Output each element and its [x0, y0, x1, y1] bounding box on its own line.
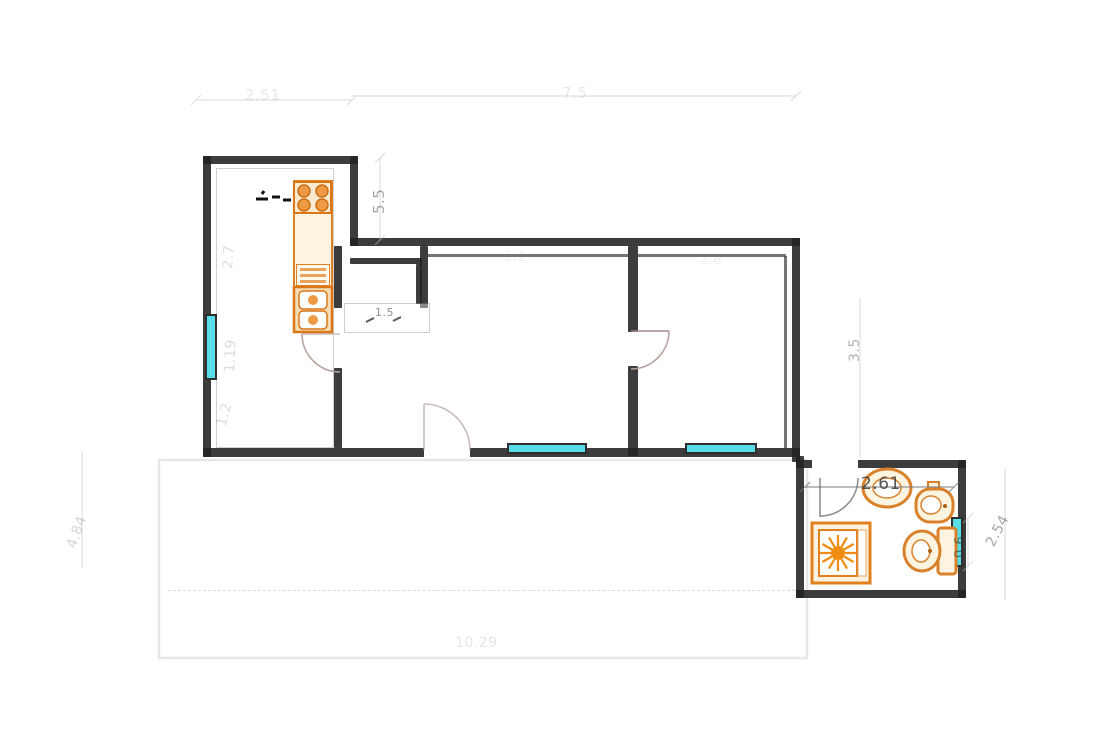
- dim-wing-right: 3.5: [847, 338, 863, 362]
- dim-kitchen-upper: 2.7: [220, 244, 238, 269]
- plan-vector-layer: [0, 0, 1109, 741]
- stove-icon: [294, 182, 331, 213]
- room-door-arc: [631, 331, 669, 369]
- dim-bath-width: 2.61: [861, 474, 901, 494]
- toilet-icon: [904, 528, 956, 574]
- kitchen-door-arc: [302, 334, 340, 372]
- dim-corridor-niche: 1.5: [375, 306, 394, 319]
- dim-bottom-total: 10.29: [455, 635, 498, 651]
- dish-rack-icon: [256, 191, 291, 200]
- floor-plan-canvas: 2.51 7.5 5.5 2.7 1.19 1.2 1.5 4.84 3.2 2…: [0, 0, 1109, 741]
- dim-kitchen-window: 1.19: [222, 339, 240, 373]
- bidet-icon: [916, 482, 953, 522]
- shower-icon: [812, 523, 870, 583]
- double-sink-icon: [294, 287, 332, 332]
- dim-top-kitchen: 2.51: [245, 86, 280, 104]
- dim-top-wing: 7.5: [562, 84, 587, 102]
- dim-kitchen-offset: 5.5: [370, 189, 388, 214]
- dim-bedroom-top: 2.6: [700, 253, 722, 268]
- dim-bath-window: 0.6: [953, 536, 968, 558]
- entry-door-arc: [424, 404, 470, 450]
- bath-door-arc: [820, 478, 858, 517]
- dim-living-top: 3.2: [504, 250, 526, 265]
